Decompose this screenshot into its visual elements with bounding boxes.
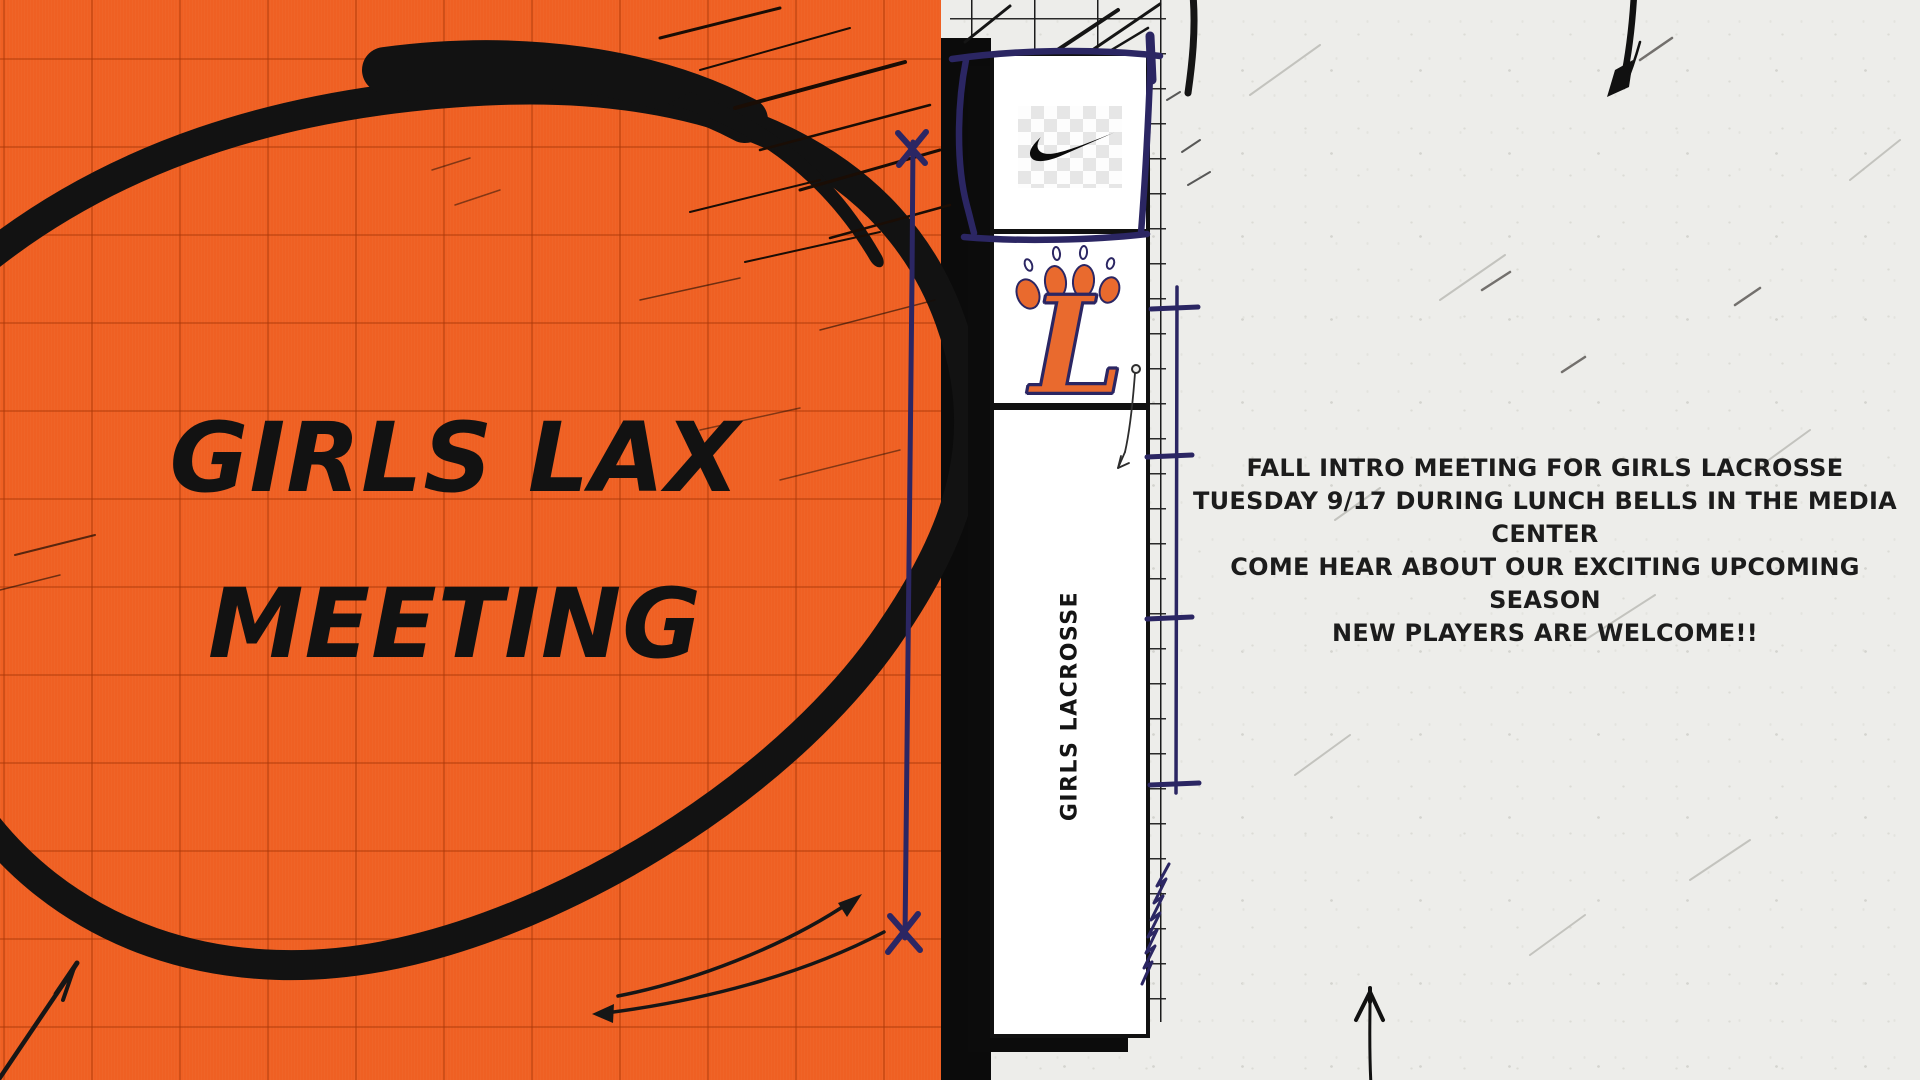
banner-column: L GIRLS LACROSSE (990, 52, 1150, 1038)
announcement-line: NEW PLAYERS ARE WELCOME!! (1190, 617, 1900, 650)
poster-title-line1: GIRLS LAX (60, 402, 850, 514)
poster-title-line2: MEETING (60, 568, 850, 680)
paw-claw-icon (1051, 246, 1062, 262)
vertical-team-label: GIRLS LACROSSE (1058, 591, 1083, 821)
paw-print-logo: L (1008, 238, 1136, 406)
paw-claw-icon (1078, 245, 1088, 261)
orange-grid-panel (0, 0, 941, 1080)
announcement-line: CENTER (1190, 518, 1900, 551)
team-letter: L (1030, 278, 1125, 413)
vertical-label-box: GIRLS LACROSSE (994, 410, 1146, 1026)
announcement-line: COME HEAR ABOUT OUR EXCITING UPCOMING SE… (1190, 551, 1900, 617)
nike-logo-box (994, 56, 1146, 234)
announcement-line: TUESDAY 9/17 DURING LUNCH BELLS IN THE M… (1190, 485, 1900, 518)
announcement-text: FALL INTRO MEETING FOR GIRLS LACROSSE TU… (1190, 452, 1900, 650)
divider-black-bar (941, 38, 991, 1080)
transparency-checkerboard (1018, 106, 1122, 188)
announcement-line: FALL INTRO MEETING FOR GIRLS LACROSSE (1190, 452, 1900, 485)
nike-swoosh-icon (1022, 130, 1118, 164)
team-logo-box: L (994, 234, 1146, 410)
